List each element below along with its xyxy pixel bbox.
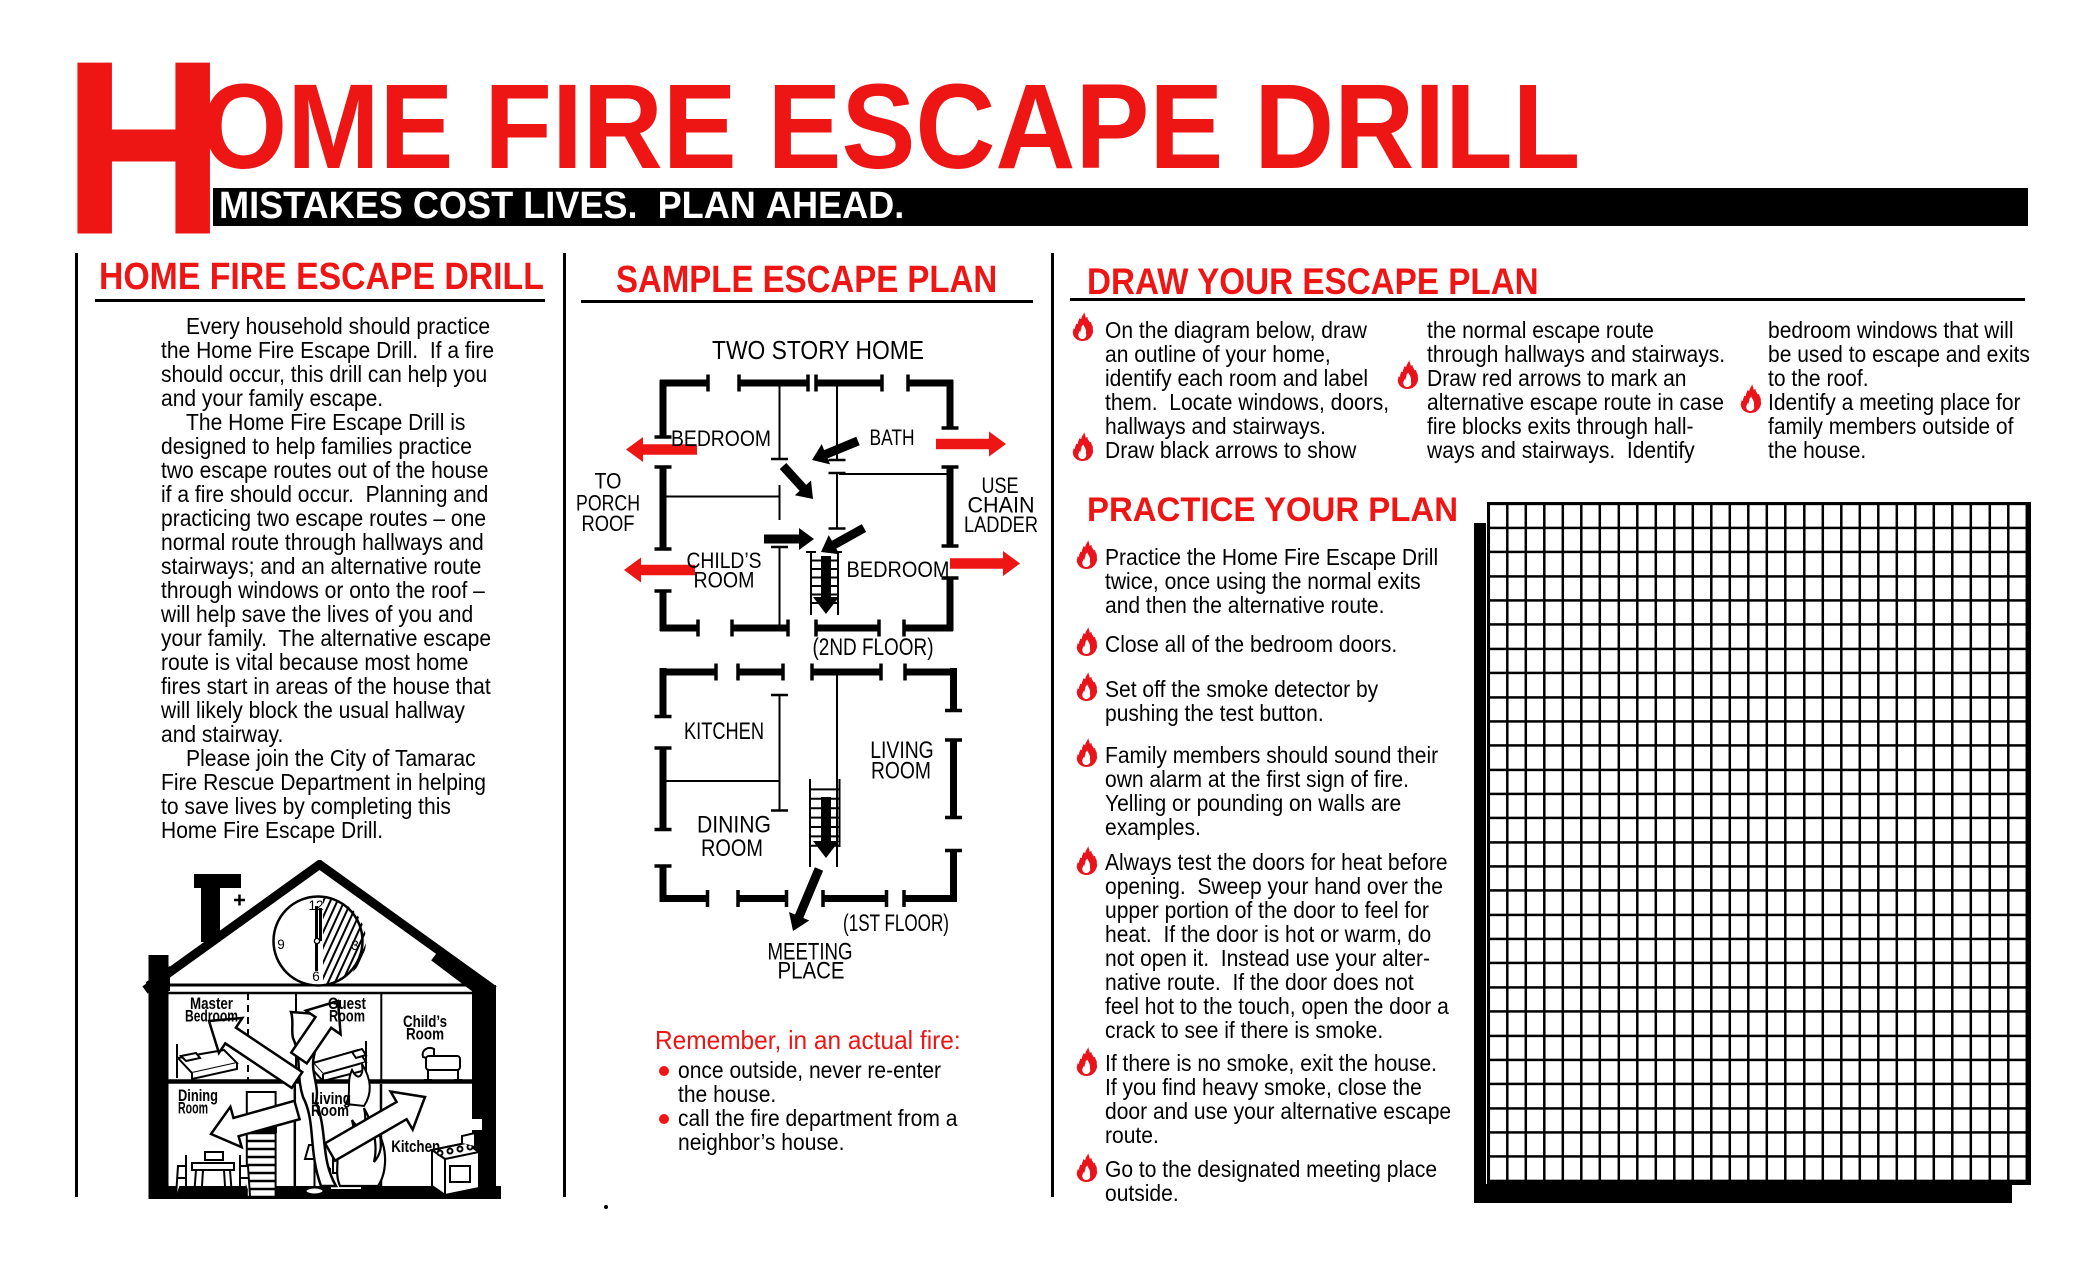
svg-text:LADDER: LADDER — [964, 512, 1038, 537]
svg-text:KITCHEN: KITCHEN — [684, 718, 764, 745]
svg-text:9: 9 — [277, 937, 285, 952]
svg-text:BATH: BATH — [870, 425, 915, 450]
svg-text:ROOM: ROOM — [871, 758, 931, 785]
svg-text:6: 6 — [312, 969, 320, 984]
svg-text:TWO STORY HOME: TWO STORY HOME — [712, 335, 924, 365]
svg-text:Room: Room — [406, 1024, 444, 1043]
svg-text:ROOM: ROOM — [694, 568, 755, 593]
svg-text:Room: Room — [311, 1101, 349, 1120]
svg-text:BEDROOM: BEDROOM — [671, 426, 771, 451]
svg-text:Room: Room — [329, 1007, 365, 1026]
svg-text:ROOM: ROOM — [701, 835, 763, 862]
svg-text:Room: Room — [178, 1099, 208, 1118]
svg-text:PLACE: PLACE — [778, 958, 845, 985]
svg-text:(1ST FLOOR): (1ST FLOOR) — [843, 910, 949, 937]
svg-text:Kitchen: Kitchen — [391, 1137, 440, 1156]
svg-text:3: 3 — [351, 938, 359, 953]
svg-text:(2ND FLOOR): (2ND FLOOR) — [813, 634, 934, 661]
svg-text:ROOF: ROOF — [582, 511, 635, 536]
svg-text:Bedroom: Bedroom — [185, 1007, 238, 1026]
svg-text:BEDROOM: BEDROOM — [847, 557, 950, 582]
